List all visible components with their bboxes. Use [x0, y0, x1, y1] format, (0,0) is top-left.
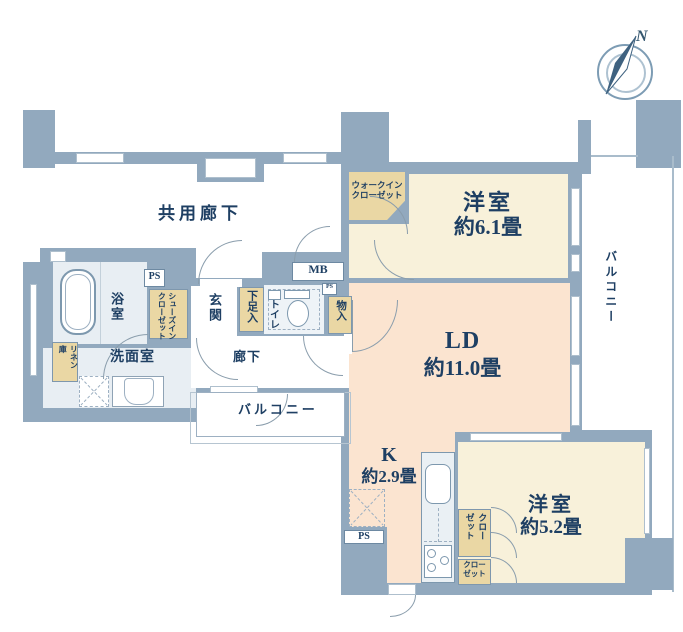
balcony-top-rail [591, 155, 638, 157]
floor-plan: N [0, 0, 683, 632]
corridor-door-opening [205, 158, 256, 178]
bedroom2-label: 洋室 約5.2畳 [476, 494, 626, 539]
linen-line2: 庫 [57, 345, 68, 369]
ps-bath-label: PS [144, 271, 165, 283]
bath-label: 浴室 [108, 292, 123, 322]
compass: N [590, 26, 670, 106]
bottom-door-opening [388, 584, 416, 595]
bath-divider [100, 262, 101, 344]
shoe-box-label: 下足入 [245, 290, 258, 323]
wall-corner-block [625, 538, 673, 590]
entrance-door-arc [198, 240, 242, 284]
stove-burner [427, 549, 436, 558]
ld-bedroom2-sliding-door [470, 433, 562, 441]
washing-machine-inner [124, 378, 154, 405]
ld-window [571, 296, 580, 356]
bedroom1-size: 約6.1畳 [413, 215, 563, 239]
kitchen-name: K [349, 444, 429, 467]
compass-north-label: N [636, 28, 648, 46]
mb-door-arc [294, 226, 330, 262]
linen-line1: リネン [68, 345, 79, 369]
counter-dash-h [424, 541, 452, 542]
wall-shaft-block [341, 112, 389, 164]
sic-line2: クローゼット [156, 292, 166, 340]
toilet-bowl-icon [287, 300, 309, 327]
wic-line2: クローゼット [346, 191, 408, 201]
closet-a-line2: ゼット [463, 513, 476, 540]
wet-block-notch [50, 251, 66, 262]
hallway-label: 廊下 [233, 350, 261, 365]
monoire-label: 物入 [334, 300, 346, 321]
wall-top-left-block [23, 110, 55, 168]
entrance-label: 玄関 [206, 293, 221, 323]
kitchen-label: K 約2.9畳 [349, 444, 429, 487]
balcony-bottom-label: バルコニー [238, 403, 318, 418]
bedroom1-window [571, 254, 580, 272]
closet-b-line2: ゼット [458, 570, 491, 579]
kitchen-size: 約2.9畳 [349, 467, 429, 487]
balcony-right-rail [672, 156, 674, 592]
ld-door-leaf [352, 300, 353, 352]
ld-name: LD [390, 328, 535, 356]
west-window [30, 284, 37, 376]
bedroom1-label: 洋室 約6.1畳 [413, 190, 563, 239]
bedroom1-name: 洋室 [413, 190, 563, 215]
stove-burner [427, 563, 436, 572]
common-corridor-label: 共用廊下 [158, 204, 242, 224]
ps-kitchen-label: PS [344, 531, 384, 543]
corridor-window [283, 153, 327, 163]
bedroom2-name: 洋室 [476, 494, 626, 517]
sic-line1: シューズイン [166, 292, 176, 340]
closet-b-label: クロー ゼット [458, 561, 491, 578]
bedroom2-window [644, 448, 650, 534]
linen-label: リネン 庫 [57, 345, 79, 369]
toilet-tank-icon [284, 290, 310, 299]
refrigerator-space-icon [349, 489, 385, 527]
mb-label: MB [292, 263, 344, 277]
bedroom1-window [571, 188, 580, 246]
ld-label: LD 約11.0畳 [390, 328, 535, 380]
bathtub-inner [65, 274, 91, 330]
ld-window [571, 364, 580, 426]
closet-a-line1: クロー [476, 513, 489, 540]
balcony-right-label: バルコニー [603, 250, 617, 325]
service-door-arc [390, 595, 416, 617]
washroom-sink-icon [79, 376, 109, 407]
shoes-in-closet-label: シューズイン クローゼット [156, 292, 177, 340]
ps-small-label: PS [322, 284, 337, 291]
wic-label: ウォークイン クローゼット [346, 181, 408, 201]
corridor-window [76, 153, 124, 163]
toilet-label: トイレ [267, 299, 279, 329]
bedroom2-size: 約5.2畳 [476, 517, 626, 539]
stove-burner [440, 556, 449, 565]
counter-dash-v [438, 508, 439, 542]
washroom-label: 洗面室 [110, 350, 155, 366]
wall-top-right-block [636, 100, 681, 168]
closet-a-label: クロー ゼット [463, 513, 488, 540]
ld-size: 約11.0畳 [390, 356, 535, 380]
